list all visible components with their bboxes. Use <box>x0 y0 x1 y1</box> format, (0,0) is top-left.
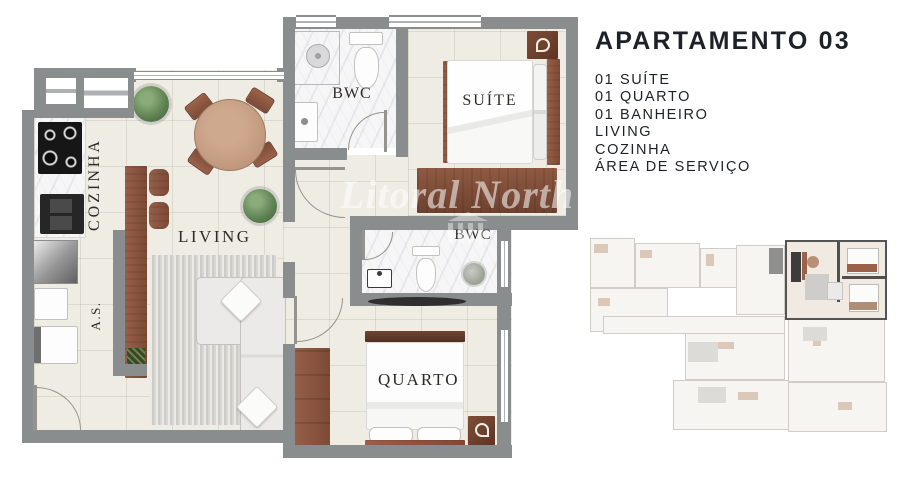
overview-bed-blanket <box>847 264 877 272</box>
feature-item: 01 SUÍTE <box>595 72 895 89</box>
faucet-dot <box>301 118 308 125</box>
overview-wood-accent <box>594 244 608 253</box>
overview-bed-blanket <box>849 302 877 310</box>
overview-floor-plan <box>588 232 897 450</box>
wall-segment <box>113 230 125 376</box>
wall-segment <box>283 445 512 458</box>
potted-plant <box>243 189 277 223</box>
bathroom-plant <box>463 263 485 285</box>
door-leaf <box>294 296 297 344</box>
window <box>499 330 510 422</box>
overview-elevator <box>769 248 783 274</box>
overview-kitchen <box>791 252 801 282</box>
wall-segment <box>22 430 295 443</box>
dining-table <box>194 99 266 171</box>
room-label-bwc-suite: BWC <box>329 85 375 103</box>
table-lamp-icon <box>475 423 489 437</box>
feature-item: COZINHA <box>595 142 895 159</box>
overview-wall <box>842 276 887 279</box>
wall-segment <box>283 160 295 222</box>
overview-corridor <box>603 316 785 334</box>
kitchen-sink <box>40 194 84 234</box>
wall-segment <box>283 17 295 160</box>
overview-wood-accent <box>838 402 852 410</box>
wall-segment <box>283 262 295 298</box>
shower-head <box>306 44 330 68</box>
window <box>499 241 510 287</box>
room-label-living: LIVING <box>178 227 242 247</box>
cooktop <box>38 122 82 174</box>
window <box>389 15 481 29</box>
overview-wood-accent <box>706 254 714 266</box>
stool <box>149 169 169 196</box>
wall-segment <box>283 148 347 160</box>
kitchen-island <box>125 166 147 378</box>
room-label-cozinha: COZINHA <box>86 141 104 231</box>
overview-highlighted-unit <box>785 240 887 320</box>
door-leaf <box>384 110 387 152</box>
overview-wood-accent <box>640 250 652 258</box>
quarto-bed-shelf <box>365 331 465 342</box>
wardrobe <box>294 348 330 448</box>
overview-wood-accent <box>598 298 610 306</box>
overview-rug-accent <box>803 327 827 341</box>
window <box>296 15 336 29</box>
suite-bed-pillows <box>533 64 547 160</box>
entry-door-leaf <box>33 385 37 431</box>
suite-bed-duvet <box>447 60 533 164</box>
window <box>84 76 128 110</box>
feature-item: 01 QUARTO <box>595 89 895 106</box>
laundry-tank <box>34 288 68 320</box>
window-band <box>134 71 284 80</box>
table-lamp-icon <box>536 38 550 52</box>
toilet-tank <box>349 32 383 45</box>
wall-segment <box>396 17 408 157</box>
fridge <box>33 240 78 284</box>
toilet-tank <box>412 246 440 256</box>
page-title: APARTAMENTO 03 <box>595 27 895 56</box>
building-columns <box>448 223 488 243</box>
toilet-bowl <box>416 258 436 292</box>
feature-list: 01 SUÍTE 01 QUARTO 01 BANHEIRO LIVING CO… <box>595 72 895 176</box>
overview-bwc <box>827 282 843 300</box>
faucet-dot <box>377 271 382 276</box>
overview-rug-accent <box>698 387 726 403</box>
washing-machine <box>33 326 78 364</box>
room-label-area-servico: A.S. <box>88 294 104 338</box>
door-leaf <box>362 230 365 260</box>
feature-item: ÁREA DE SERVIÇO <box>595 159 895 176</box>
stool <box>149 202 169 229</box>
clothes-rod <box>368 297 466 306</box>
info-panel: APARTAMENTO 03 01 SUÍTE 01 QUARTO 01 BAN… <box>595 27 895 176</box>
watermark-text: Litoral North <box>340 171 574 218</box>
feature-item: 01 BANHEIRO <box>595 107 895 124</box>
wall-segment <box>113 364 147 376</box>
feature-item: LIVING <box>595 124 895 141</box>
suite-headboard <box>547 59 560 165</box>
window <box>46 76 76 106</box>
potted-plant <box>133 86 169 122</box>
overview-rug <box>805 274 829 300</box>
apartment-plan-canvas: COZINHA A.S. LIVING BWC SUÍTE BWC QUARTO… <box>0 0 900 482</box>
toilet-bowl <box>354 47 379 89</box>
door-leaf <box>295 167 345 170</box>
overview-wood-accent <box>738 392 758 400</box>
room-label-quarto: QUARTO <box>378 370 454 390</box>
overview-unit <box>673 380 790 430</box>
overview-rug-accent <box>688 342 718 362</box>
room-label-suite: SUÍTE <box>462 92 518 110</box>
overview-table <box>807 256 819 268</box>
